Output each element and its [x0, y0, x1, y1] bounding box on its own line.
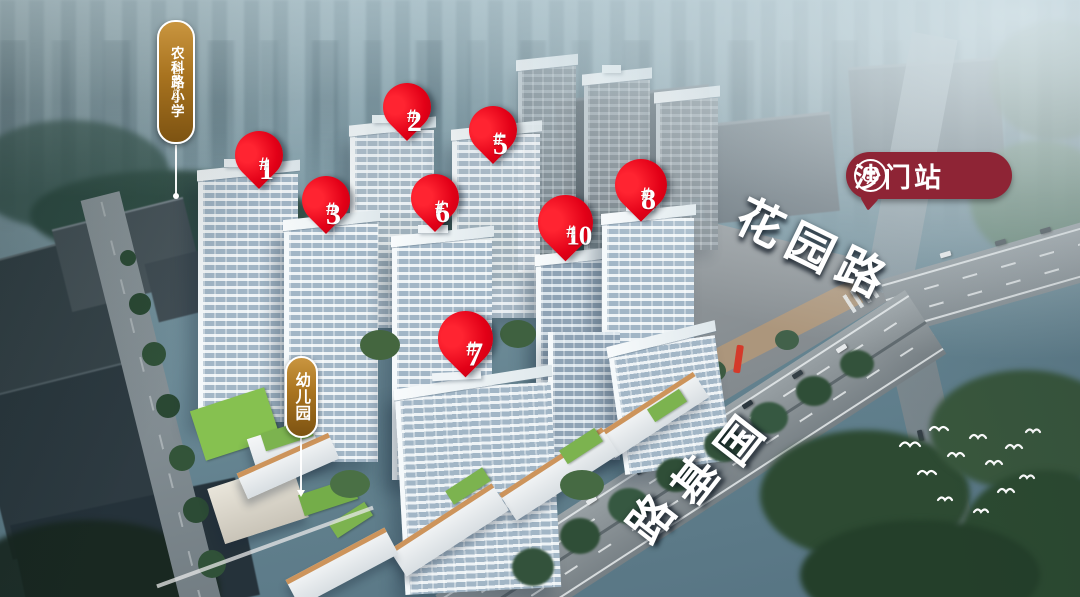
kindergarten-leader-line [300, 438, 302, 494]
courtyard-tree [360, 330, 400, 360]
school-branch: （国基校区） [172, 58, 180, 106]
roadside-tree [560, 518, 600, 554]
tower-1 [198, 174, 298, 422]
rooftop-structure [602, 65, 622, 73]
school-leader-line [175, 145, 177, 195]
metro-station-name: 沙门站 [854, 156, 944, 195]
roadside-tree [840, 350, 874, 378]
roadside-trees [120, 250, 136, 266]
plaza-tree [775, 330, 799, 350]
leader-arrowhead [297, 490, 305, 501]
leader-endpoint [173, 193, 179, 199]
roadside-tree [512, 548, 554, 586]
aerial-rendering: 花园路 国 基 路 农科路小学 （国基校区） 幼儿园 沙门站 [0, 0, 1080, 597]
roadside-tree [796, 376, 832, 406]
kindergarten-label[interactable]: 幼儿园 [285, 356, 318, 438]
courtyard-tree [500, 320, 536, 348]
courtyard-tree [560, 470, 604, 500]
metro-station-badge[interactable]: 沙门站 [846, 152, 1012, 199]
school-label[interactable]: 农科路小学 （国基校区） [157, 20, 195, 144]
birds-icon [878, 408, 1074, 540]
courtyard-tree [330, 470, 370, 498]
kindergarten-name: 幼儿园 [294, 372, 310, 422]
